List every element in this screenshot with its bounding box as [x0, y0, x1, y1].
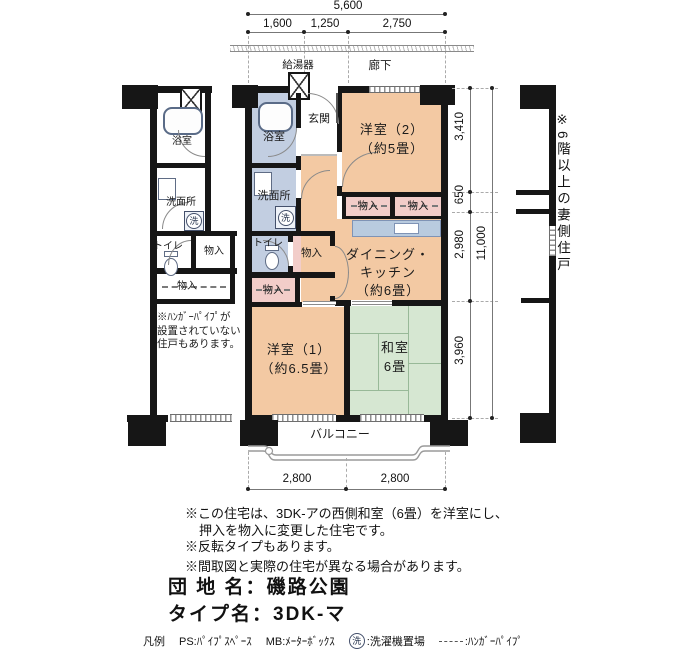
neighbor-label-toilet: トイレ [146, 241, 190, 253]
sliding-door [303, 301, 336, 305]
dim-right-seg1: 3,410 [454, 112, 466, 141]
bathtub-icon [258, 102, 293, 132]
wall [296, 156, 301, 170]
label-closet-c: 物入 [347, 200, 389, 212]
tatami-line [350, 333, 408, 334]
sliding-door [352, 301, 392, 305]
wall [245, 85, 252, 422]
wall [342, 197, 346, 216]
washer-place-icon: 洗 [275, 206, 296, 229]
window-hatch [272, 414, 336, 422]
type-name-value: 3DK-マ [273, 604, 346, 625]
wall [150, 109, 157, 415]
dim-tick [246, 30, 250, 34]
toilet-bowl-icon [265, 252, 279, 270]
western1-size: （約6.5畳） [260, 361, 337, 376]
dim-line-right-segs [470, 88, 471, 418]
pillar [520, 413, 556, 443]
floor-plan-page: 5,600 1,600 1,250 2,750 廊下 給湯器 洗 浴室 洗面所 … [0, 0, 700, 650]
dim-tick [468, 299, 472, 303]
label-entrance: 玄関 [302, 113, 336, 126]
dk-size: （約6畳） [356, 283, 420, 298]
wall [252, 163, 296, 168]
dim-ext [445, 36, 446, 83]
label-toilet: トイレ [246, 238, 290, 250]
dim-tick [468, 190, 472, 194]
wall [516, 190, 550, 195]
label-western1: 洋室（1）（約6.5畳） [254, 340, 344, 378]
wall [157, 231, 237, 236]
wall [342, 192, 448, 197]
wall [390, 197, 395, 216]
dim-ext [348, 36, 349, 83]
wall [516, 209, 550, 214]
label-corridor: 廊下 [358, 60, 402, 73]
wall [441, 85, 448, 422]
dim-right-seg4: 3,960 [454, 336, 466, 365]
western2-name: 洋室（2） [360, 122, 424, 137]
dim-bottom-seg1: 2,800 [268, 473, 326, 485]
label-bath: 浴室 [254, 131, 294, 144]
entrance-step-line [301, 154, 337, 156]
pillar [420, 85, 455, 105]
type-name-label: タイプ名： [168, 604, 273, 625]
estate-name-line: 団 地 名：磯路公園 [168, 572, 351, 599]
pillar [520, 85, 556, 109]
dim-tick [468, 86, 472, 90]
label-japanese-room: 和室6畳 [370, 338, 420, 376]
dim-tick [246, 12, 250, 16]
dim-tick [443, 30, 447, 34]
japanese-name: 和室 [381, 340, 409, 355]
dk-line1: ダイニング・ [346, 247, 430, 262]
dim-tick [344, 487, 348, 491]
label-dk: ダイニング・キッチン（約6畳） [336, 246, 440, 300]
wall [344, 306, 350, 416]
corridor-edge-line [230, 45, 474, 52]
legend-hanger: :ﾊﾝｶﾞｰﾊﾟｲﾌﾟ [439, 633, 523, 649]
label-closet-a: 物入 [293, 247, 330, 259]
dim-top-seg1: 1,600 [250, 18, 305, 30]
dim-bottom-seg2: 2,800 [366, 473, 424, 485]
neighbor-label-closet2: 物入 [166, 281, 208, 293]
washer-mark: 洗 [278, 210, 294, 226]
label-closet-d: 物入 [397, 200, 439, 212]
dim-tick [490, 86, 494, 90]
dim-line-right-total [492, 88, 493, 418]
wall [521, 298, 550, 303]
dim-tick [302, 30, 306, 34]
dim-ext [248, 452, 249, 488]
dim-tick [443, 487, 447, 491]
neighbor-label-washroom: 洗面所 [154, 197, 208, 209]
wall [157, 163, 205, 168]
wall [392, 300, 448, 306]
legend-heading: 凡例 [143, 633, 165, 649]
type-name-line: タイプ名：3DK-マ [168, 599, 346, 626]
legend-washer: 洗:洗濯機置場 [349, 633, 425, 649]
wall [150, 268, 237, 274]
wall [330, 236, 335, 246]
dim-tick [468, 210, 472, 214]
dim-right-seg3: 2,980 [454, 230, 466, 259]
wall [342, 216, 448, 219]
western2-size: （約5畳） [360, 141, 424, 156]
legend-row: 凡例 PS:ﾊﾟｲﾌﾟｽﾍﾟｰｽ MB:ﾒｰﾀｰﾎﾞｯｸｽ 洗:洗濯機置場 :ﾊ… [143, 633, 523, 649]
wall [205, 93, 211, 233]
entrance-door-leaf [336, 93, 338, 123]
western1-name: 洋室（1） [267, 342, 331, 357]
hanger-pipe-dash-icon [439, 641, 463, 642]
dim-right-total: 11,000 [476, 226, 488, 260]
legend-ps: PS:ﾊﾟｲﾌﾟｽﾍﾟｰｽ [179, 633, 252, 649]
label-closet-b: 物入 [252, 284, 294, 296]
dim-top-seg2: 1,250 [301, 18, 349, 30]
dim-top-total: 5,600 [318, 0, 378, 12]
wall [296, 93, 301, 128]
balcony-railing [238, 424, 460, 472]
estate-name-label: 団 地 名： [168, 577, 267, 598]
neighbor-label-closet1: 物入 [196, 246, 232, 258]
legend-mb: MB:ﾒｰﾀｰﾎﾞｯｸｽ [266, 633, 335, 649]
window-hatch [360, 414, 424, 422]
legend-washer-label: :洗濯機置場 [367, 633, 425, 649]
gable-side-note: ※6階以上の妻側住戸 [552, 112, 572, 327]
wall [252, 302, 302, 307]
label-washroom: 洗面所 [249, 190, 299, 203]
dim-ext [248, 36, 249, 83]
dim-tick [490, 416, 494, 420]
dk-line2: キッチン [360, 265, 416, 280]
wall [245, 272, 335, 278]
wall [252, 231, 335, 236]
dim-tick [246, 487, 250, 491]
legend-hanger-label: :ﾊﾝｶﾞｰﾊﾟｲﾌﾟ [465, 633, 523, 649]
pillar [128, 420, 166, 446]
japanese-size: 6畳 [384, 359, 406, 374]
wall [157, 299, 235, 304]
dim-top-seg3: 2,750 [362, 18, 432, 30]
dim-line-top-total [248, 14, 445, 15]
wall [338, 86, 369, 93]
dim-tick [443, 12, 447, 16]
dim-tick [468, 416, 472, 420]
note-line-3: ※反転タイプもあります。 [185, 536, 340, 555]
window-hatch [170, 414, 232, 422]
kitchen-sink-icon [394, 223, 419, 234]
dim-ext [445, 452, 446, 488]
washer-circle-icon: 洗 [349, 633, 365, 649]
dim-tick [346, 30, 350, 34]
dim-ext [346, 458, 347, 488]
tatami-line [350, 390, 408, 391]
estate-name-value: 磯路公園 [267, 577, 351, 598]
label-western2: 洋室（2）（約5畳） [351, 120, 433, 158]
dim-right-seg2: 650 [454, 185, 466, 204]
neighbor-label-bath: 浴室 [160, 136, 204, 148]
label-water-heater: 給湯器 [272, 59, 324, 71]
